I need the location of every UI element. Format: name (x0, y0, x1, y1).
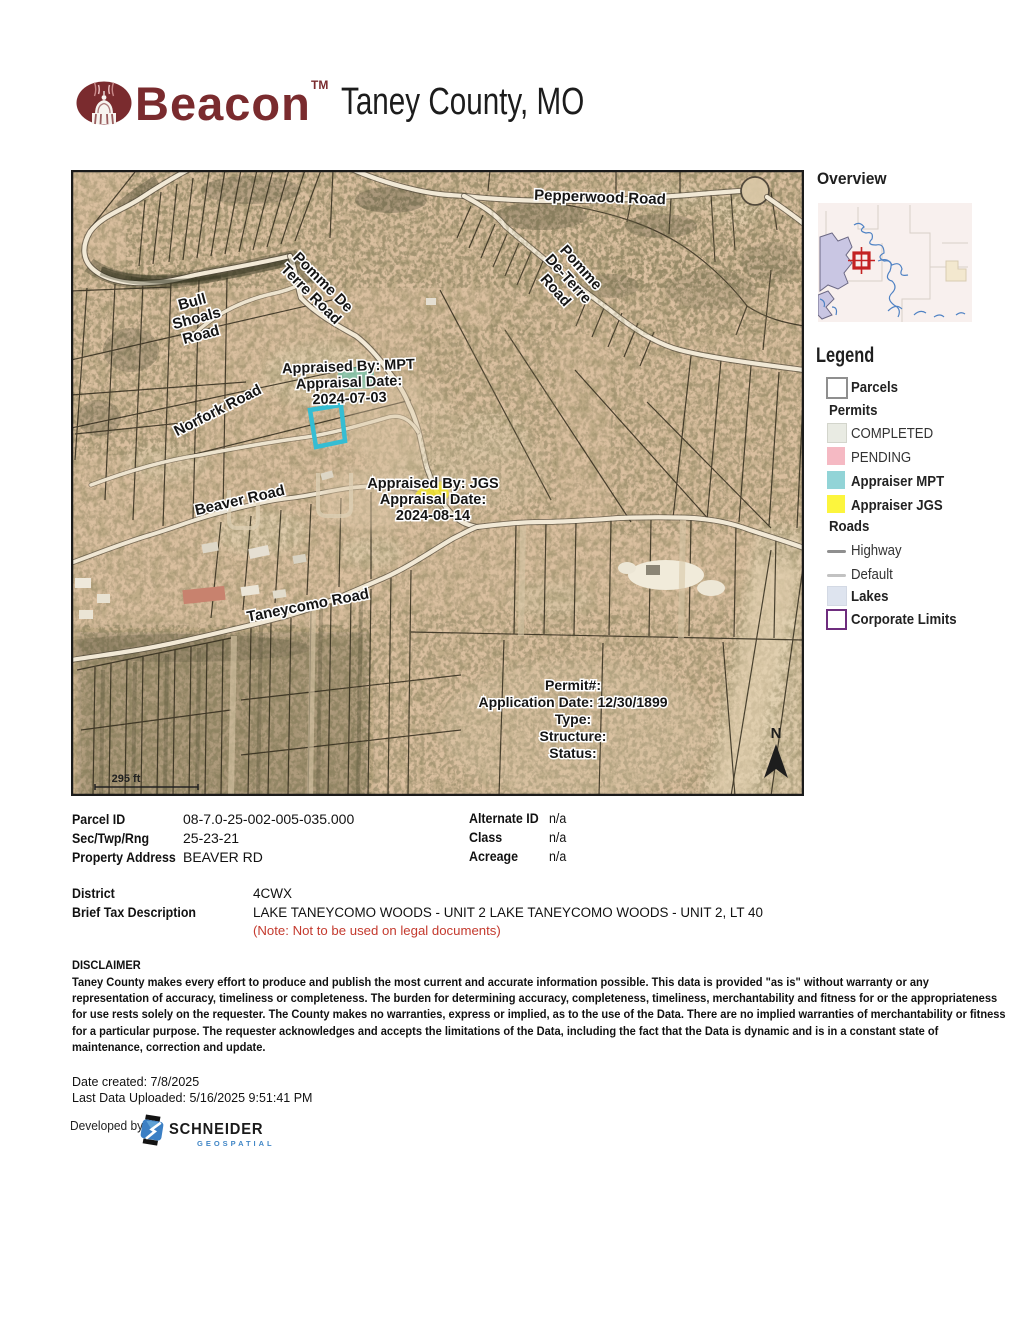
svg-text:2024-08-14: 2024-08-14 (396, 508, 470, 524)
svg-text:Type:: Type: (555, 711, 591, 727)
svg-text:Permit#:: Permit#: (545, 677, 601, 693)
svg-text:Structure:: Structure: (540, 728, 607, 744)
svg-text:Appraisal Date:: Appraisal Date: (380, 492, 486, 508)
svg-text:Application Date: 12/30/1899: Application Date: 12/30/1899 (478, 694, 667, 710)
svg-text:295 ft: 295 ft (112, 773, 141, 785)
svg-text:Status:: Status: (549, 745, 596, 761)
svg-text:2024-07-03: 2024-07-03 (312, 390, 387, 409)
svg-text:N: N (771, 725, 782, 742)
svg-text:Appraised By: JGS: Appraised By: JGS (367, 476, 499, 492)
